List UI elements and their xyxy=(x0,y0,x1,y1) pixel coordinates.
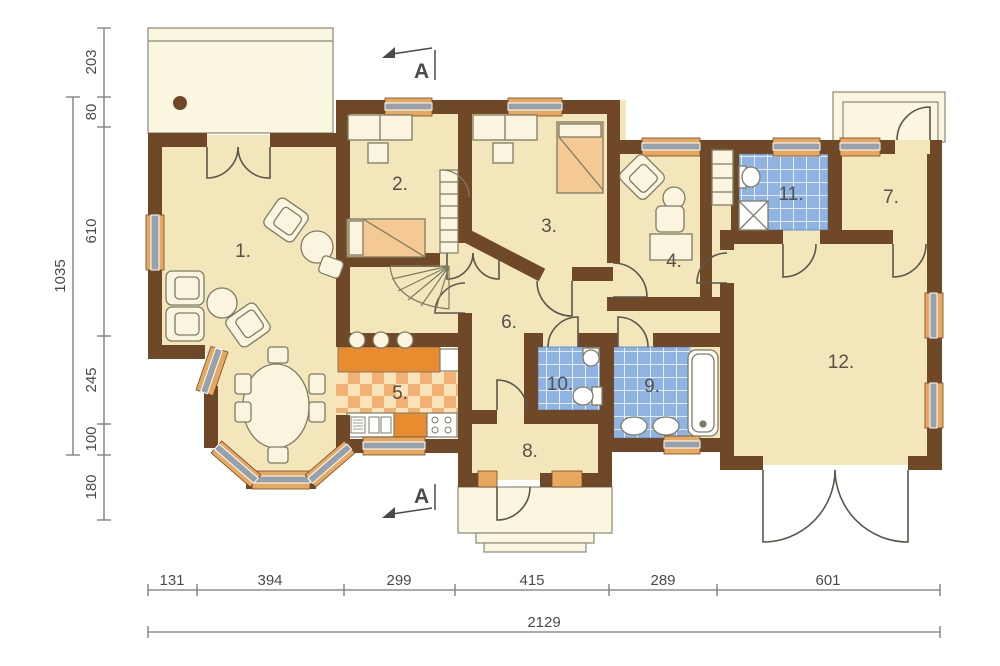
room-label-4: 4. xyxy=(666,251,682,272)
entrance-porch xyxy=(458,487,612,552)
garage-gate xyxy=(835,470,908,542)
dim-bottom-total: 2129 xyxy=(527,614,560,631)
dim-left-100: 100 xyxy=(83,426,100,451)
shower xyxy=(739,201,768,230)
window xyxy=(773,138,820,156)
dimension-bottom-labels: 131 394 299 415 289 601 2129 xyxy=(159,572,840,631)
dim-left-180: 180 xyxy=(83,474,100,499)
dim-bottom-601: 601 xyxy=(815,572,840,589)
chair xyxy=(235,402,251,422)
room-label-10: 10. xyxy=(547,374,573,395)
window xyxy=(146,215,164,270)
room-label-1: 1. xyxy=(235,241,251,262)
window xyxy=(363,437,425,455)
stove xyxy=(427,413,457,437)
window xyxy=(925,293,943,338)
section-arrow-icon xyxy=(382,47,395,58)
terrace-column xyxy=(173,96,187,110)
chair xyxy=(268,347,288,363)
window xyxy=(840,138,880,156)
dim-bottom-131: 131 xyxy=(159,572,184,589)
kitchen-pass-through xyxy=(349,332,413,348)
dim-left-80: 80 xyxy=(83,104,100,121)
room-label-6: 6. xyxy=(501,312,517,333)
window xyxy=(925,383,943,428)
toilet xyxy=(573,387,602,405)
closet xyxy=(712,150,733,205)
terrace xyxy=(148,28,333,133)
section-marker-top: A xyxy=(382,47,435,83)
floor-plan-canvas: 1. 2. 3. 4. 5. 6. 7. 8. 9. 10. 11. 12. A… xyxy=(0,0,1000,666)
room-label-12: 12. xyxy=(828,352,854,373)
chair xyxy=(309,374,325,394)
bed xyxy=(347,219,425,257)
armchair xyxy=(166,307,204,341)
section-marker-bottom: A xyxy=(382,484,435,518)
sidelight-window xyxy=(552,471,582,487)
dim-bottom-299: 299 xyxy=(386,572,411,589)
bed xyxy=(557,122,603,193)
dim-left-245: 245 xyxy=(83,367,100,392)
sink xyxy=(739,166,760,188)
window xyxy=(508,98,562,116)
back-porch xyxy=(833,92,945,142)
dim-left-203: 203 xyxy=(83,49,100,74)
window xyxy=(252,471,310,489)
armchair xyxy=(166,271,204,305)
section-letter-top: A xyxy=(414,60,429,83)
sink xyxy=(621,417,647,435)
section-letter-bottom: A xyxy=(414,485,429,508)
sidelight-window xyxy=(478,471,497,487)
dining-table xyxy=(243,364,309,448)
room-label-11: 11. xyxy=(778,184,803,205)
window xyxy=(642,138,700,156)
garage-gate xyxy=(763,470,835,542)
kitchen-cabinet xyxy=(394,413,427,437)
chair xyxy=(309,402,325,422)
dim-bottom-289: 289 xyxy=(650,572,675,589)
coffee-table xyxy=(207,288,237,318)
room-label-2: 2. xyxy=(392,174,408,195)
dim-bottom-394: 394 xyxy=(257,572,282,589)
room-label-5: 5. xyxy=(392,383,408,404)
dim-left-610: 610 xyxy=(83,218,100,243)
desk-chair xyxy=(656,206,684,232)
nightstand xyxy=(368,143,388,163)
chair xyxy=(235,374,251,394)
room-label-8: 8. xyxy=(522,441,538,462)
nightstand xyxy=(493,143,513,163)
window xyxy=(664,436,700,454)
dimension-left-labels: 203 80 610 245 100 180 1035 xyxy=(52,49,100,499)
sink xyxy=(653,417,679,435)
kitchen-counter xyxy=(338,347,440,372)
window xyxy=(385,98,432,116)
floor-plan-drawing: 1. 2. 3. 4. 5. 6. 7. 8. 9. 10. 11. 12. A… xyxy=(0,0,1000,666)
chair xyxy=(268,447,288,463)
section-arrow-icon xyxy=(382,507,395,518)
corner-sink xyxy=(583,348,599,366)
dim-bottom-415: 415 xyxy=(519,572,544,589)
room-label-3: 3. xyxy=(541,216,557,237)
dim-left-total: 1035 xyxy=(52,259,69,292)
room-label-7: 7. xyxy=(883,187,899,208)
bathtub xyxy=(688,350,718,436)
room-label-9: 9. xyxy=(644,376,660,397)
